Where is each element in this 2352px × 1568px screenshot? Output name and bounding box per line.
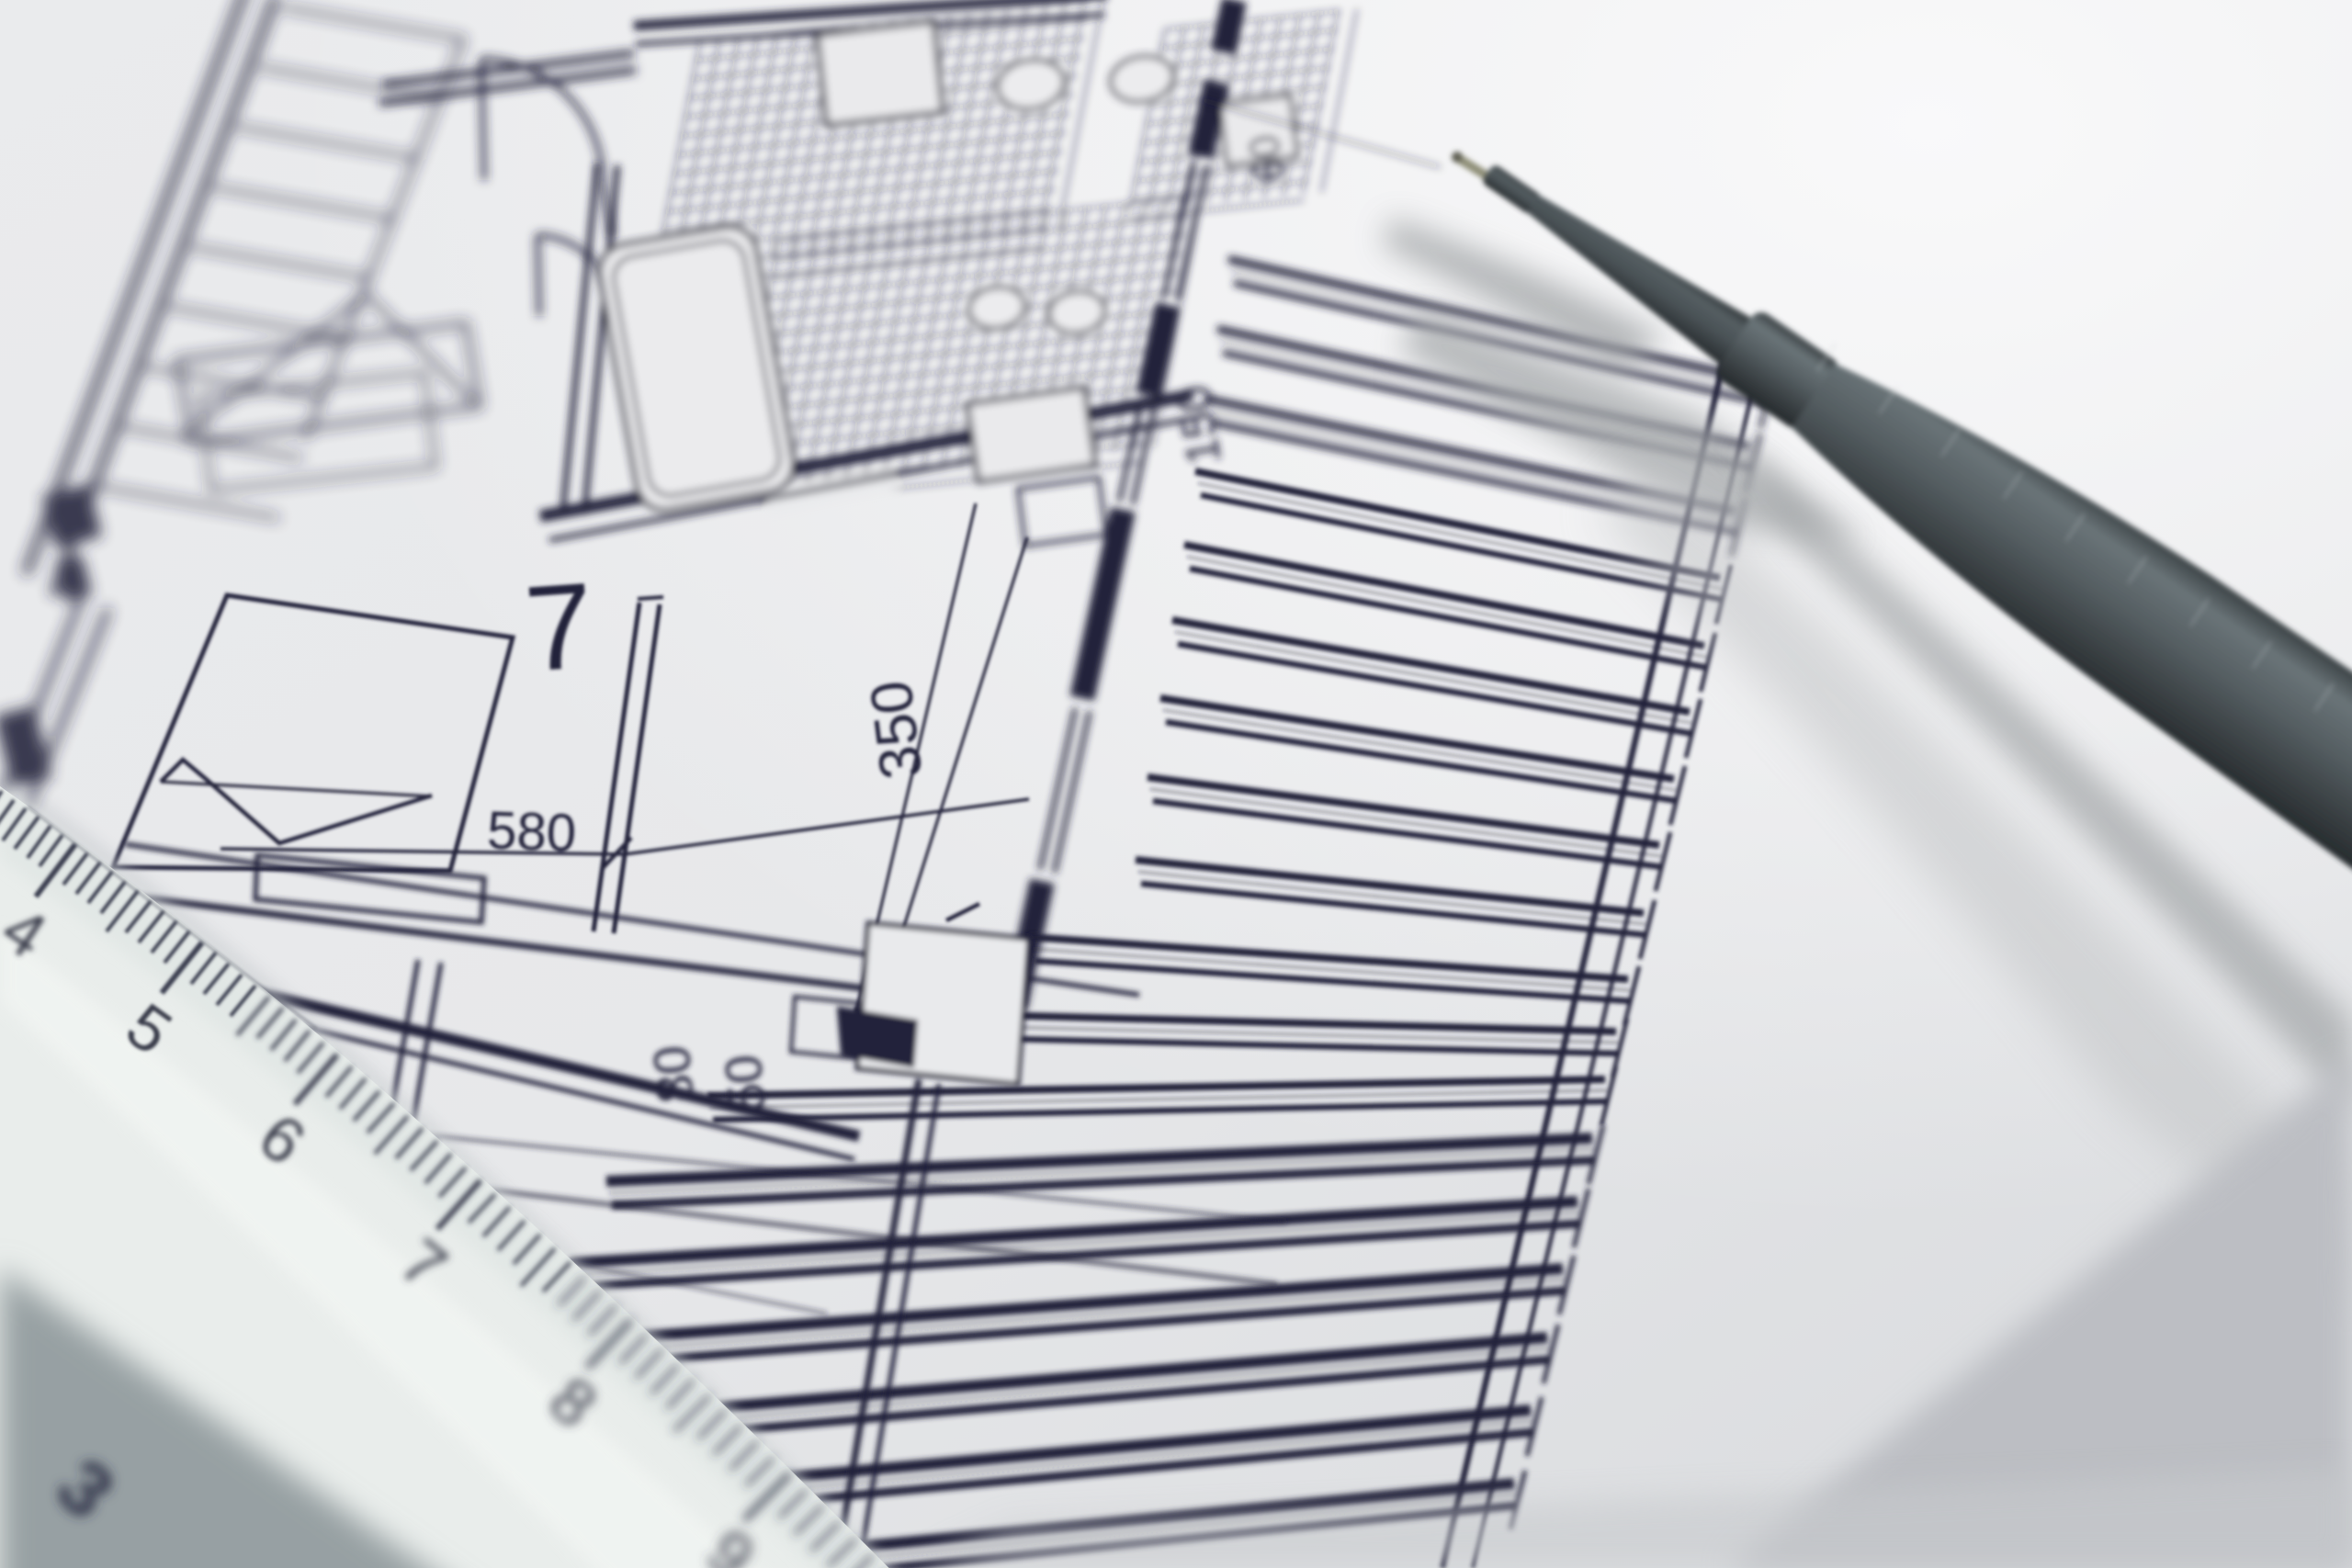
svg-text:80: 80 xyxy=(641,1043,704,1106)
svg-text:50: 50 xyxy=(713,1053,775,1115)
svg-text:7: 7 xyxy=(521,558,597,697)
svg-text:350: 350 xyxy=(857,677,934,783)
svg-text:580: 580 xyxy=(486,800,577,863)
svg-text:60: 60 xyxy=(1239,131,1294,186)
